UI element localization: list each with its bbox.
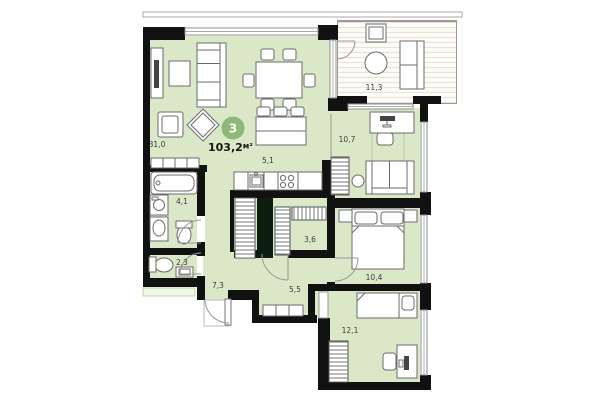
wall-segment	[337, 96, 367, 104]
wall-segment	[143, 248, 199, 255]
wall-segment	[308, 284, 420, 291]
room-area-label: 12,1	[342, 326, 359, 335]
radiator	[331, 157, 349, 195]
room-area-label: 10,4	[366, 273, 383, 282]
floor-plan-svg: 3 103,2м² 31,0 5,1 11,3 10,7 4,1 3,6 10,…	[0, 0, 600, 400]
pouf	[352, 175, 364, 187]
room-area-label: 11,3	[366, 83, 383, 92]
passage-floor	[205, 165, 233, 257]
wall-segment	[413, 96, 441, 104]
dark-storage-block	[257, 198, 273, 258]
balcony-sofa	[400, 41, 424, 89]
wall-segment	[230, 190, 332, 198]
wall-segment	[327, 198, 430, 208]
room-area-label: 2,3	[176, 258, 188, 267]
bathroom-sink	[150, 217, 168, 241]
wall-segment	[318, 25, 338, 40]
kitchen-counter	[234, 172, 322, 190]
room-area-label: 5,1	[262, 156, 274, 165]
wall-segment	[318, 318, 330, 384]
kids-desk-chair	[383, 353, 396, 370]
sideboard	[151, 158, 199, 168]
wall-segment	[143, 278, 200, 287]
wall-segment	[420, 283, 431, 310]
tv-icon	[154, 60, 159, 88]
exterior-ledge	[143, 288, 195, 296]
double-bed	[352, 209, 404, 269]
computer-icon	[404, 356, 409, 370]
wall-segment	[228, 290, 256, 300]
kids-wardrobe	[329, 341, 348, 382]
washing-machine	[150, 195, 168, 215]
wall-segment	[197, 287, 205, 300]
wall-segment	[230, 198, 234, 252]
kitchen-island	[256, 107, 306, 145]
study-doorway-floor	[328, 111, 336, 160]
balcony-round-table	[365, 52, 387, 74]
single-bed	[357, 293, 417, 318]
wardrobe	[275, 207, 290, 255]
armchair	[158, 112, 183, 137]
nightstand	[339, 210, 352, 222]
desk-chair	[377, 133, 393, 145]
sofa	[197, 43, 226, 107]
study-sofa	[366, 161, 414, 194]
balcony-floor	[338, 22, 456, 103]
room-area-label: 31,0	[149, 140, 166, 149]
wall-segment	[288, 250, 330, 258]
wall-segment	[197, 172, 205, 216]
room-area-label: 7,3	[212, 281, 224, 290]
wall-segment	[318, 382, 430, 390]
shelf-unit	[292, 207, 326, 220]
wall-segment	[197, 276, 205, 287]
nightstand	[404, 210, 417, 222]
study-desk	[370, 112, 414, 133]
kids-door-leaf	[319, 292, 328, 318]
wc-toilet	[149, 257, 173, 272]
wc-sink	[176, 267, 193, 277]
kids-desk	[397, 345, 417, 378]
room-area-label: 3,6	[304, 235, 316, 244]
wall-segment	[420, 192, 431, 215]
room-area-label: 5,5	[289, 285, 301, 294]
room-count-badge: 3	[222, 117, 245, 140]
dining-table	[256, 62, 302, 98]
bathtub	[151, 172, 197, 194]
room-area-label: 4,1	[176, 197, 188, 206]
balcony-square-table	[366, 24, 386, 42]
wall-segment	[420, 104, 428, 122]
side-table	[169, 61, 190, 86]
tv-console	[151, 48, 163, 98]
wall-segment	[420, 375, 431, 390]
corridor-bench	[263, 305, 303, 316]
room-area-label: 10,7	[339, 135, 356, 144]
badge-room-count: 3	[229, 121, 238, 136]
computer-icon	[380, 116, 395, 121]
wardrobe	[235, 198, 255, 258]
